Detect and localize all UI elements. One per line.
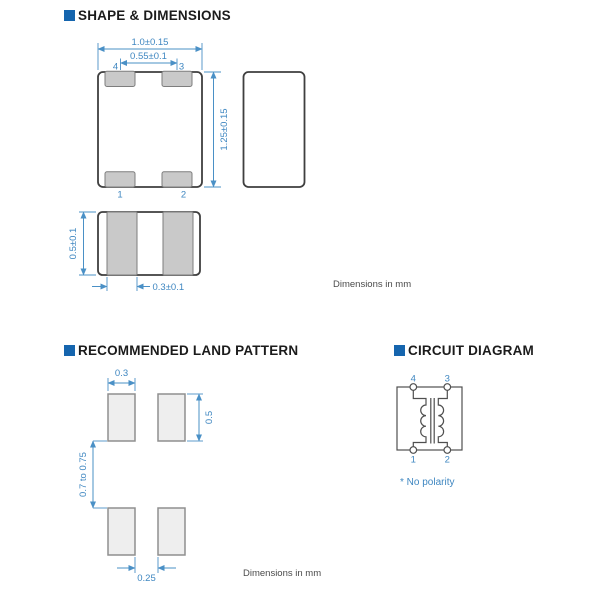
pin-label-2: 2 [181,190,186,201]
section-bullet-icon [64,345,75,356]
no-polarity-note: * No polarity [400,477,454,488]
terminal-circle-1 [410,447,417,454]
front-terminal-left [107,212,137,275]
component-side-view-body [244,72,305,187]
dimensions-note-land-pattern: Dimensions in mm [243,568,321,579]
circuit-pin-3: 3 [445,374,450,385]
section-title-shape: SHAPE & DIMENSIONS [78,8,231,23]
pin-label-4: 4 [113,62,118,73]
pin-label-3: 3 [179,62,184,73]
section-header-land-pattern: RECOMMENDED LAND PATTERN [64,343,298,358]
land-pad-bottom-left [108,508,135,555]
circuit-pin-1: 1 [411,455,416,466]
dim-label-body-width: 1.0±0.15 [132,37,169,48]
dim-label-body-length: 1.25±0.15 [219,108,230,150]
datasheet-page: SHAPE & DIMENSIONS 1.0±0.15 0.55±0.1 4 3 [0,0,600,600]
terminal-circle-3 [444,384,451,391]
terminal-pad-1 [105,172,135,187]
land-pad-bottom-right [158,508,185,555]
terminal-pad-4 [105,71,135,86]
section-bullet-icon [64,10,75,21]
section-bullet-icon [394,345,405,356]
dim-label-body-height: 0.5±0.1 [68,228,79,260]
front-terminal-right [163,212,193,275]
dim-label-land-pad-height: 0.5 [204,411,215,424]
terminal-pad-3 [162,71,192,86]
land-pattern-drawing: 0.3 0.5 0.7 to 0.75 0.25 [0,360,340,600]
section-title-land-pattern: RECOMMENDED LAND PATTERN [78,343,298,358]
circuit-outline [397,387,462,450]
land-pad-top-left [108,394,135,441]
section-header-shape: SHAPE & DIMENSIONS [64,8,231,23]
dim-label-terminal-pitch: 0.55±0.1 [130,51,167,62]
circuit-diagram-drawing: 4 3 1 2 [380,365,540,495]
component-top-view-body [98,72,202,187]
terminal-circle-4 [410,384,417,391]
terminal-circle-2 [444,447,451,454]
land-pad-top-right [158,394,185,441]
section-header-circuit: CIRCUIT DIAGRAM [394,343,534,358]
dim-label-land-pad-gap: 0.25 [137,573,156,584]
winding-left [413,390,426,446]
dim-label-terminal-width: 0.3±0.1 [153,282,185,293]
section-title-circuit: CIRCUIT DIAGRAM [408,343,534,358]
winding-right [438,390,447,446]
dimensions-note-shape: Dimensions in mm [333,279,411,290]
dim-label-land-row-gap: 0.7 to 0.75 [78,452,89,497]
terminal-pad-2 [162,172,192,187]
circuit-pin-2: 2 [445,455,450,466]
circuit-pin-4: 4 [411,374,416,385]
dim-label-land-pad-width: 0.3 [115,368,128,379]
shape-dimensions-drawing: 1.0±0.15 0.55±0.1 4 3 1.25±0.15 1 2 0.5±… [0,30,600,305]
pin-label-1: 1 [117,190,122,201]
